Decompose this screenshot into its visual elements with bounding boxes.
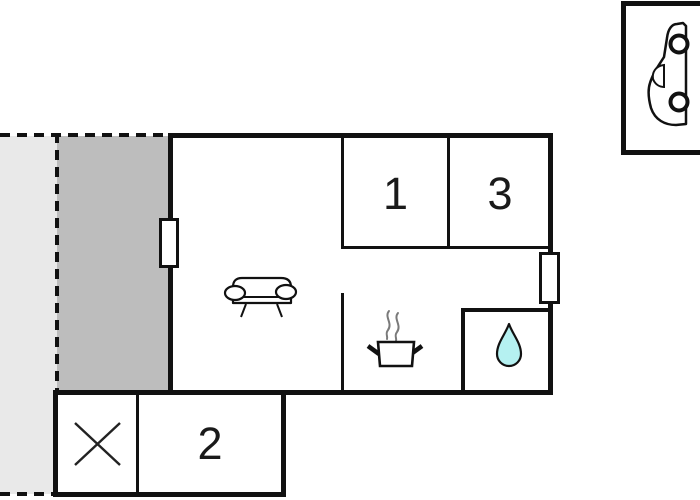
car-icon	[646, 18, 694, 135]
wall-bathroom-top	[461, 308, 548, 312]
cooking-pot-icon	[362, 306, 428, 370]
window-right-icon	[539, 252, 560, 304]
wall-annex-right	[281, 390, 286, 497]
wall-right-upper	[548, 133, 553, 252]
sofa-icon	[222, 274, 300, 320]
steam-icon	[396, 313, 399, 341]
wall-annex-bottom	[53, 492, 286, 497]
room-1-label: 1	[344, 140, 447, 246]
wall-top	[168, 133, 553, 138]
room-2-label: 2	[139, 395, 281, 492]
wall-bathroom-left	[461, 308, 465, 390]
floorplan-canvas: 1 3 2	[0, 0, 700, 500]
terrace-area-light	[0, 136, 57, 494]
wall-kitchen	[341, 293, 344, 390]
cross-icon	[73, 421, 122, 467]
parking-box	[621, 1, 700, 155]
steam-icon	[387, 311, 390, 339]
water-drop-icon	[494, 322, 524, 370]
room-3-label: 3	[452, 140, 548, 246]
wall-rooms13-bottom	[341, 246, 548, 249]
wall-bottom-main	[53, 390, 553, 395]
dashed-boundary-top	[0, 133, 168, 137]
wall-annex-left	[53, 390, 58, 497]
wall-right-lower	[548, 304, 553, 395]
wall-room1-room3-divider	[447, 138, 450, 249]
dashed-boundary-vertical	[55, 133, 59, 390]
dashed-boundary-bottom	[0, 492, 55, 496]
window-left-icon	[159, 218, 179, 268]
terrace-area-dark	[57, 136, 168, 390]
